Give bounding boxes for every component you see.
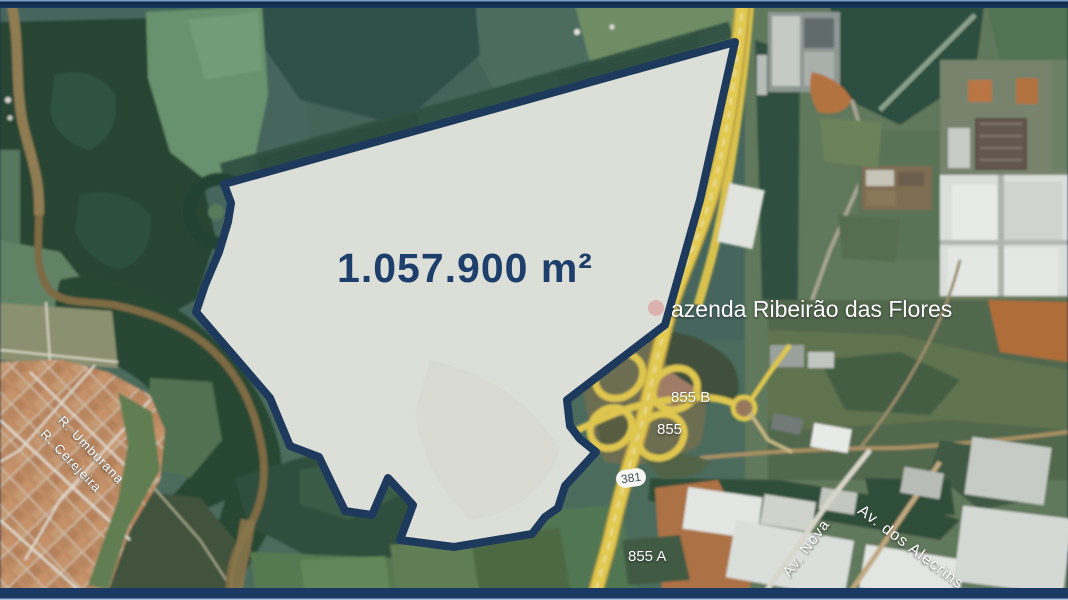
svg-text:azenda Ribeirão das Flores: azenda Ribeirão das Flores	[671, 296, 952, 322]
svg-text:381: 381	[620, 470, 642, 487]
svg-text:855 B: 855 B	[671, 389, 710, 406]
svg-text:1.057.900 m²: 1.057.900 m²	[337, 245, 593, 291]
svg-text:855 A: 855 A	[628, 548, 666, 565]
svg-text:855: 855	[657, 421, 682, 438]
